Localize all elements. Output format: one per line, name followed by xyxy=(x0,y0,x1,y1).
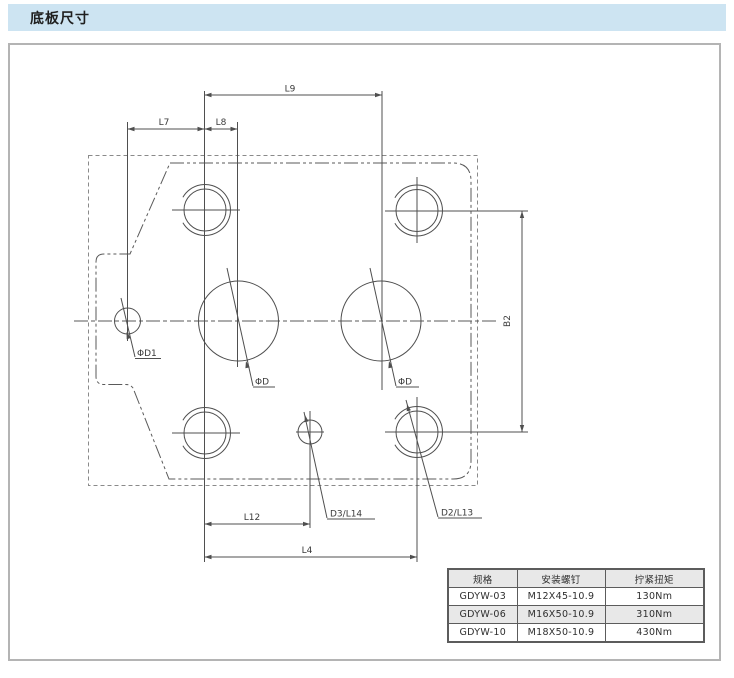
leader-lines xyxy=(121,268,482,519)
label-l9: L9 xyxy=(285,85,296,95)
table-cell: GDYW-10 xyxy=(448,624,517,643)
label-phi-d-left: ΦD xyxy=(255,378,269,388)
col-header-torque: 拧紧扭矩 xyxy=(605,569,704,588)
table-cell: 130Nm xyxy=(605,588,704,606)
table-header-row: 规格 安装螺钉 拧紧扭矩 xyxy=(448,569,704,588)
label-l7: L7 xyxy=(159,118,170,128)
table-row: GDYW-03 M12X45-10.9 130Nm xyxy=(448,588,704,606)
label-d3-l14: D3/L14 xyxy=(330,510,362,520)
col-header-spec: 规格 xyxy=(448,569,517,588)
label-b2: B2 xyxy=(503,315,513,327)
spec-table: 规格 安装螺钉 拧紧扭矩 GDYW-03 M12X45-10.9 130Nm G… xyxy=(447,568,705,643)
table-cell: GDYW-06 xyxy=(448,606,517,624)
col-header-screw: 安装螺钉 xyxy=(517,569,605,588)
table-cell: GDYW-03 xyxy=(448,588,517,606)
table-row: GDYW-06 M16X50-10.9 310Nm xyxy=(448,606,704,624)
label-d2-l13: D2/L13 xyxy=(441,509,473,519)
extension-lines xyxy=(128,91,529,562)
table-cell: 310Nm xyxy=(605,606,704,624)
table-cell: 430Nm xyxy=(605,624,704,643)
label-phi-d-right: ΦD xyxy=(398,378,412,388)
page: { "header": { "title": "底板尺寸" }, "drawin… xyxy=(0,0,734,678)
table-row: GDYW-10 M18X50-10.9 430Nm xyxy=(448,624,704,643)
label-l12: L12 xyxy=(244,513,260,523)
table-cell: M18X50-10.9 xyxy=(517,624,605,643)
table-cell: M16X50-10.9 xyxy=(517,606,605,624)
label-l4: L4 xyxy=(302,546,313,556)
label-phi-d1: ΦD1 xyxy=(137,349,157,359)
table-cell: M12X45-10.9 xyxy=(517,588,605,606)
port-holes xyxy=(115,281,422,444)
label-l8: L8 xyxy=(216,118,227,128)
